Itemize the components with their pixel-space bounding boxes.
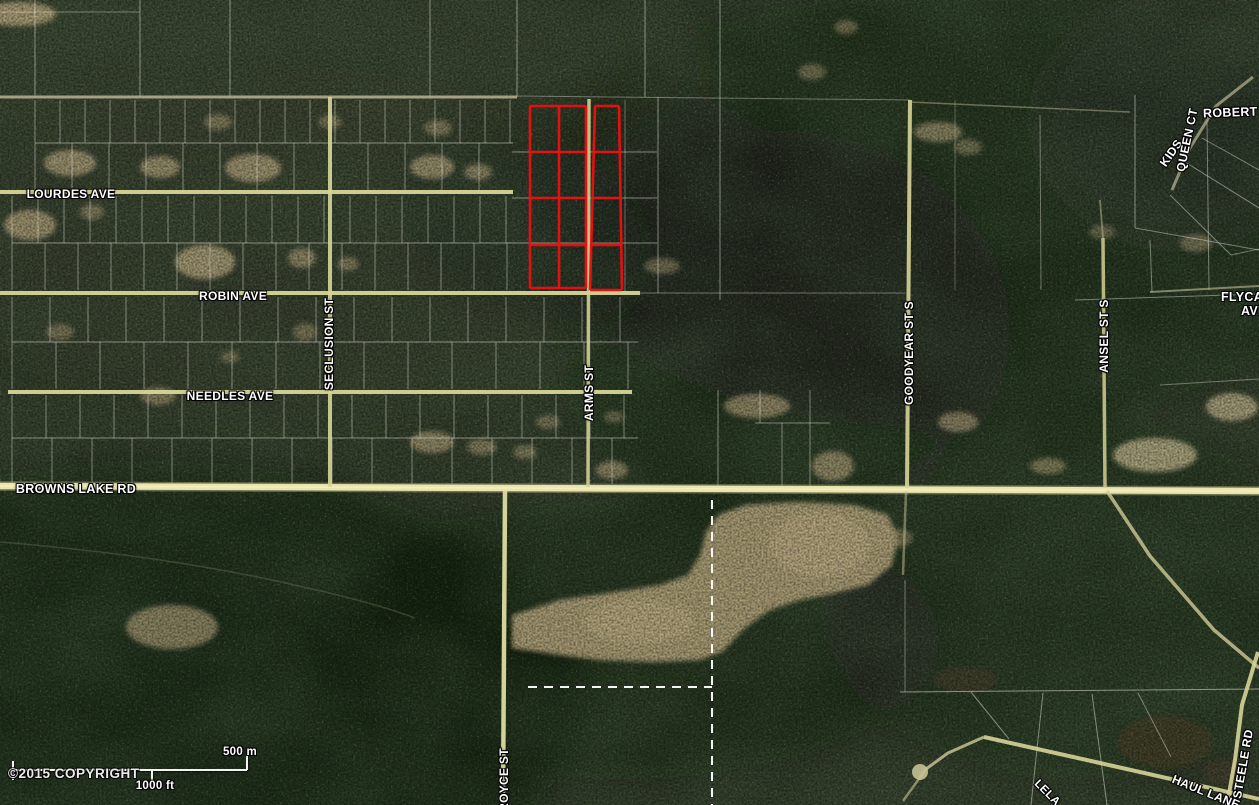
canopy-speckle-light	[0, 0, 1259, 805]
map-imagery	[0, 0, 1259, 805]
aerial-map-viewport[interactable]: ©2015 COPYRIGHT LOURDES AVEROBIN AVENEED…	[0, 0, 1259, 805]
